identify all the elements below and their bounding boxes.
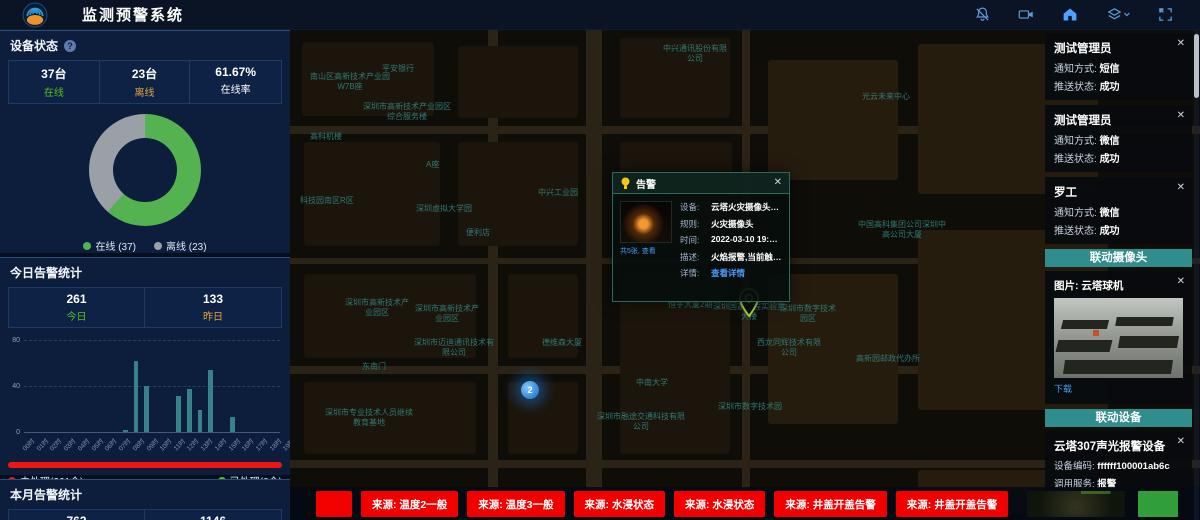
map-place-label: 深圳市高新技术产业园区	[412, 304, 482, 325]
notify-method-label: 通知方式:	[1054, 136, 1097, 147]
hour-bar	[208, 370, 213, 432]
close-icon[interactable]: ✕	[1177, 39, 1185, 49]
map-place-label: 科技园南区R区	[300, 196, 354, 206]
notification-card: ✕ 测试管理员 通知方式: 微信 推送状态: 成功	[1045, 105, 1192, 172]
alert-source-tile[interactable]: 来源: 温度2一般	[361, 491, 458, 517]
device-status-donut	[89, 114, 201, 226]
scrollbar-thumb[interactable]	[1194, 34, 1199, 98]
stat-online-rate: 61.67% 在线率	[190, 61, 281, 103]
app-root: 监测预警系统 设备状态 ?	[0, 0, 1200, 520]
map-place-label: A座	[426, 160, 439, 170]
notify-method-value: 短信	[1100, 64, 1120, 75]
today-alarm-section: 今日告警统计 261 今日 133 昨日 80 40 0 00时01时02时03…	[0, 257, 290, 475]
push-status-label: 推送状态:	[1054, 226, 1097, 237]
close-icon[interactable]: ✕	[1177, 111, 1185, 121]
map-place-label: 西龙同辉技术有限公司	[756, 338, 822, 359]
y-tick: 0	[8, 429, 20, 436]
map-place-label: 便利店	[466, 228, 490, 238]
field-value: 2022-03-10 19:13:07	[711, 234, 782, 246]
stat-month-2: 1146	[145, 510, 281, 520]
stat-month-1: 763	[9, 510, 145, 520]
device-field-value: ffffff100001ab6c	[1097, 461, 1169, 472]
map-place-label: 中国高科集团公司深圳中高公司大厦	[858, 220, 946, 241]
notify-method-value: 微信	[1100, 136, 1120, 147]
hourly-bars	[24, 340, 280, 432]
map-place-label: 高新园邮政代办所	[856, 354, 920, 364]
map-place-label: 高科机楼	[310, 132, 342, 142]
map-place-label: 深圳市迈迪通讯技术有限公司	[412, 338, 496, 359]
linked-devices-header[interactable]: 联动设备	[1045, 409, 1192, 427]
popup-title: 告警	[636, 176, 656, 191]
map-place-label: 深圳市专业技术人员继续教育基地	[322, 408, 416, 429]
page-title: 监测预警系统	[82, 4, 184, 25]
notify-method-label: 通知方式:	[1054, 208, 1097, 219]
notification-list: ✕ 测试管理员 通知方式: 短信 推送状态: 成功 ✕ 测试管理员 通知方式: …	[1045, 33, 1192, 244]
alert-source-tile[interactable]: 来源: 水浸状态	[674, 491, 765, 517]
map-building	[304, 142, 440, 246]
map-cluster-marker[interactable]: 2	[521, 381, 539, 399]
y-tick: 80	[8, 337, 20, 344]
download-link[interactable]: 下载	[1054, 382, 1072, 395]
alarm-bulb-icon	[620, 177, 631, 190]
alert-source-tile[interactable]	[316, 491, 352, 517]
camera-snapshot[interactable]	[1054, 298, 1183, 378]
field-value: 火灾摄像头	[711, 218, 754, 230]
photo-detail	[1055, 340, 1112, 352]
map-place-label: 南山区高新技术产业园W7B座	[308, 72, 392, 93]
hour-bar	[144, 386, 149, 432]
alert-tiles: 来源: 温度2一般来源: 温度3一般来源: 水浸状态来源: 水浸状态来源: 井盖…	[316, 491, 1008, 517]
photo-detail	[1063, 360, 1173, 374]
snapshot-more-link[interactable]: 共5张, 查看	[620, 246, 672, 256]
legend-online[interactable]: 在线 (37)	[83, 238, 136, 253]
map-place-label: 深圳市融途交通科技有限公司	[596, 412, 686, 433]
help-icon[interactable]: ?	[64, 40, 76, 52]
field-value: 云塔火灾摄像头202	[711, 201, 782, 213]
hour-bar	[198, 410, 203, 432]
map-place-label: 东南门	[362, 362, 386, 372]
push-status-label: 推送状态:	[1054, 154, 1097, 165]
field-label: 规则:	[680, 218, 706, 230]
notify-method-label: 通知方式:	[1054, 64, 1097, 75]
close-icon[interactable]: ✕	[1177, 437, 1185, 447]
push-status-value: 成功	[1100, 154, 1120, 165]
scrollbar	[1194, 30, 1199, 520]
month-alarm-section: 本月告警统计 763 1146	[0, 479, 290, 520]
close-icon[interactable]: ✕	[1177, 277, 1185, 287]
field-label: 详情:	[680, 267, 706, 279]
alert-source-tile[interactable]: 来源: 温度3一般	[467, 491, 564, 517]
map-place-label: 光云未来中心	[862, 92, 910, 102]
header-toolbar	[974, 6, 1200, 23]
notify-method-value: 微信	[1100, 208, 1120, 219]
map-place-label: 深圳市数字技术园	[718, 402, 782, 412]
alert-snapshot[interactable]	[620, 201, 672, 243]
y-tick: 40	[8, 383, 20, 390]
map-building	[768, 60, 898, 180]
camera-card-title: 图片: 云塔球机	[1054, 278, 1183, 293]
green-thumbnail[interactable]	[1138, 491, 1178, 517]
notified-person: 罗工	[1054, 184, 1183, 200]
notification-card: ✕ 罗工 通知方式: 微信 推送状态: 成功	[1045, 177, 1192, 244]
map-building	[458, 46, 578, 118]
map-place-label: 中兴工业园	[538, 188, 578, 198]
close-icon[interactable]: ✕	[774, 178, 782, 188]
popup-fields: 设备:云塔火灾摄像头202 规则:火灾摄像头 时间:2022-03-10 19:…	[680, 201, 782, 284]
layers-icon[interactable]	[1105, 6, 1131, 23]
today-alarm-stats: 261 今日 133 昨日	[8, 287, 282, 328]
field-label: 设备:	[680, 201, 706, 213]
hour-bar	[176, 396, 181, 432]
hour-bar	[123, 430, 128, 432]
photo-detail	[1061, 320, 1110, 329]
app-logo-icon	[22, 2, 48, 28]
alert-popup: 告警 ✕ 共5张, 查看 设备:云塔火灾摄像头202 规则:火灾摄像头 时间:2…	[612, 172, 790, 302]
stat-today: 261 今日	[9, 288, 145, 327]
push-status-value: 成功	[1100, 82, 1120, 93]
unprocessed-progress-bar	[8, 462, 282, 468]
camera-card: ✕ 图片: 云塔球机 下载	[1045, 271, 1192, 404]
stat-offline: 23台 离线	[100, 61, 191, 103]
map-place-label: 深圳市高新技术产业园区	[342, 298, 412, 319]
map-place-label: 中兴通讯股份有限公司	[662, 44, 728, 65]
month-alarm-title: 本月告警统计	[10, 486, 82, 503]
map-place-label: 深圳市高新技术产业园区综合服务楼	[360, 102, 454, 123]
stat-yesterday: 133 昨日	[145, 288, 281, 327]
notifications-off-icon[interactable]	[974, 6, 991, 23]
hour-bar	[187, 389, 192, 432]
linked-camera-header[interactable]: 联动摄像头	[1045, 249, 1192, 267]
field-value: 火焰报警,当前触发值为...	[711, 251, 782, 263]
alert-source-tile[interactable]: 来源: 井盖开盖告警	[774, 491, 886, 517]
map-place-label: 德维森大厦	[542, 338, 582, 348]
alert-ticker: 来源: 温度2一般来源: 温度3一般来源: 水浸状态来源: 水浸状态来源: 井盖…	[290, 487, 1200, 520]
view-details-link[interactable]: 查看详情	[711, 267, 745, 279]
home-icon[interactable]	[1061, 6, 1079, 23]
app-header: 监测预警系统	[0, 0, 1200, 30]
push-status-label: 推送状态:	[1054, 82, 1097, 93]
hourly-alarm-chart: 80 40 0	[24, 340, 280, 432]
video-camera-icon[interactable]	[1017, 6, 1035, 23]
close-icon[interactable]: ✕	[1177, 183, 1185, 193]
push-status-value: 成功	[1100, 226, 1120, 237]
notification-card: ✕ 测试管理员 通知方式: 短信 推送状态: 成功	[1045, 33, 1192, 100]
video-thumbnail[interactable]	[1027, 491, 1125, 517]
map-place-label: 深圳市数字技术园区	[778, 304, 838, 325]
map-place-label: 深圳虚拟大学园	[416, 204, 472, 214]
device-title: 云塔307声光报警设备	[1054, 438, 1183, 454]
field-label: 时间:	[680, 234, 706, 246]
photo-detail	[1115, 317, 1173, 326]
today-alarm-title: 今日告警统计	[10, 264, 82, 281]
device-field-label: 设备编码:	[1054, 461, 1095, 472]
device-status-title: 设备状态	[10, 37, 58, 54]
map-road	[586, 30, 602, 520]
alert-source-tile[interactable]: 来源: 水浸状态	[574, 491, 665, 517]
hour-bar	[230, 417, 235, 432]
photo-detail	[1117, 336, 1178, 348]
device-status-stats: 37台 在线 23台 离线 61.67% 在线率	[8, 60, 282, 104]
left-panel: 设备状态 ? 37台 在线 23台 离线 61.67% 在线率	[0, 30, 290, 520]
x-axis-labels: 00时01时02时03时04时05时06时07时08时09时10时11时12时1…	[24, 438, 280, 456]
right-panel: ✕ 测试管理员 通知方式: 短信 推送状态: 成功 ✕ 测试管理员 通知方式: …	[1045, 33, 1192, 520]
month-alarm-stats: 763 1146	[8, 509, 282, 520]
stat-online: 37台 在线	[9, 61, 100, 103]
alert-source-tile[interactable]: 来源: 井盖开盖告警	[896, 491, 1008, 517]
donut-legend: 在线 (37) 离线 (23)	[0, 238, 290, 253]
notified-person: 测试管理员	[1054, 40, 1183, 56]
device-status-section: 设备状态 ? 37台 在线 23台 离线 61.67% 在线率	[0, 30, 290, 253]
chevron-down-icon	[1124, 13, 1129, 15]
map-place-label: 中南大学	[636, 378, 668, 388]
legend-offline[interactable]: 离线 (23)	[154, 238, 207, 253]
fullscreen-icon[interactable]	[1157, 6, 1174, 23]
notified-person: 测试管理员	[1054, 112, 1183, 128]
field-label: 描述:	[680, 251, 706, 263]
photo-detail	[1093, 330, 1099, 336]
map-building	[508, 382, 578, 454]
hour-bar	[134, 361, 139, 432]
map-canvas[interactable]: 中兴通讯股份有限公司平安银行南山区高新技术产业园W7B座光云未来中心深圳市高新技…	[290, 30, 1200, 520]
